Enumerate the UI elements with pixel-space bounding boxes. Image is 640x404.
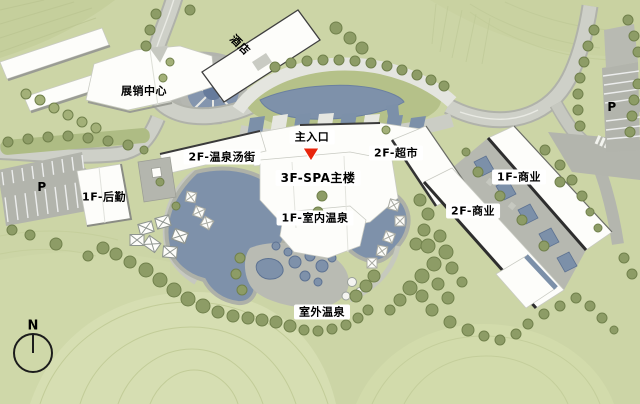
label-indoor-hot-spring: 1F-室内温泉 bbox=[277, 211, 354, 226]
site-plan: 酒店 展销中心 主入口 2F-温泉汤街 2F-超市 3F-SPA主楼 1F-商业… bbox=[0, 0, 640, 404]
label-spa-main-building: 3F-SPA主楼 bbox=[276, 170, 361, 186]
label-exhibition-center: 展销中心 bbox=[121, 86, 167, 97]
label-main-entrance: 主入口 bbox=[290, 130, 335, 145]
label-hot-spring-street: 2F-温泉汤街 bbox=[184, 150, 261, 165]
label-parking-east: P bbox=[607, 101, 616, 113]
label-parking-west: P bbox=[37, 181, 46, 193]
label-supermarket: 2F-超市 bbox=[369, 146, 423, 161]
compass-north-label: N bbox=[28, 320, 39, 333]
label-outdoor-hot-spring: 室外温泉 bbox=[294, 305, 350, 320]
label-commerce-1f: 1F-商业 bbox=[492, 170, 546, 185]
label-commerce-2f: 2F-商业 bbox=[446, 204, 500, 219]
label-logistics: 1F-后勤 bbox=[82, 192, 126, 203]
